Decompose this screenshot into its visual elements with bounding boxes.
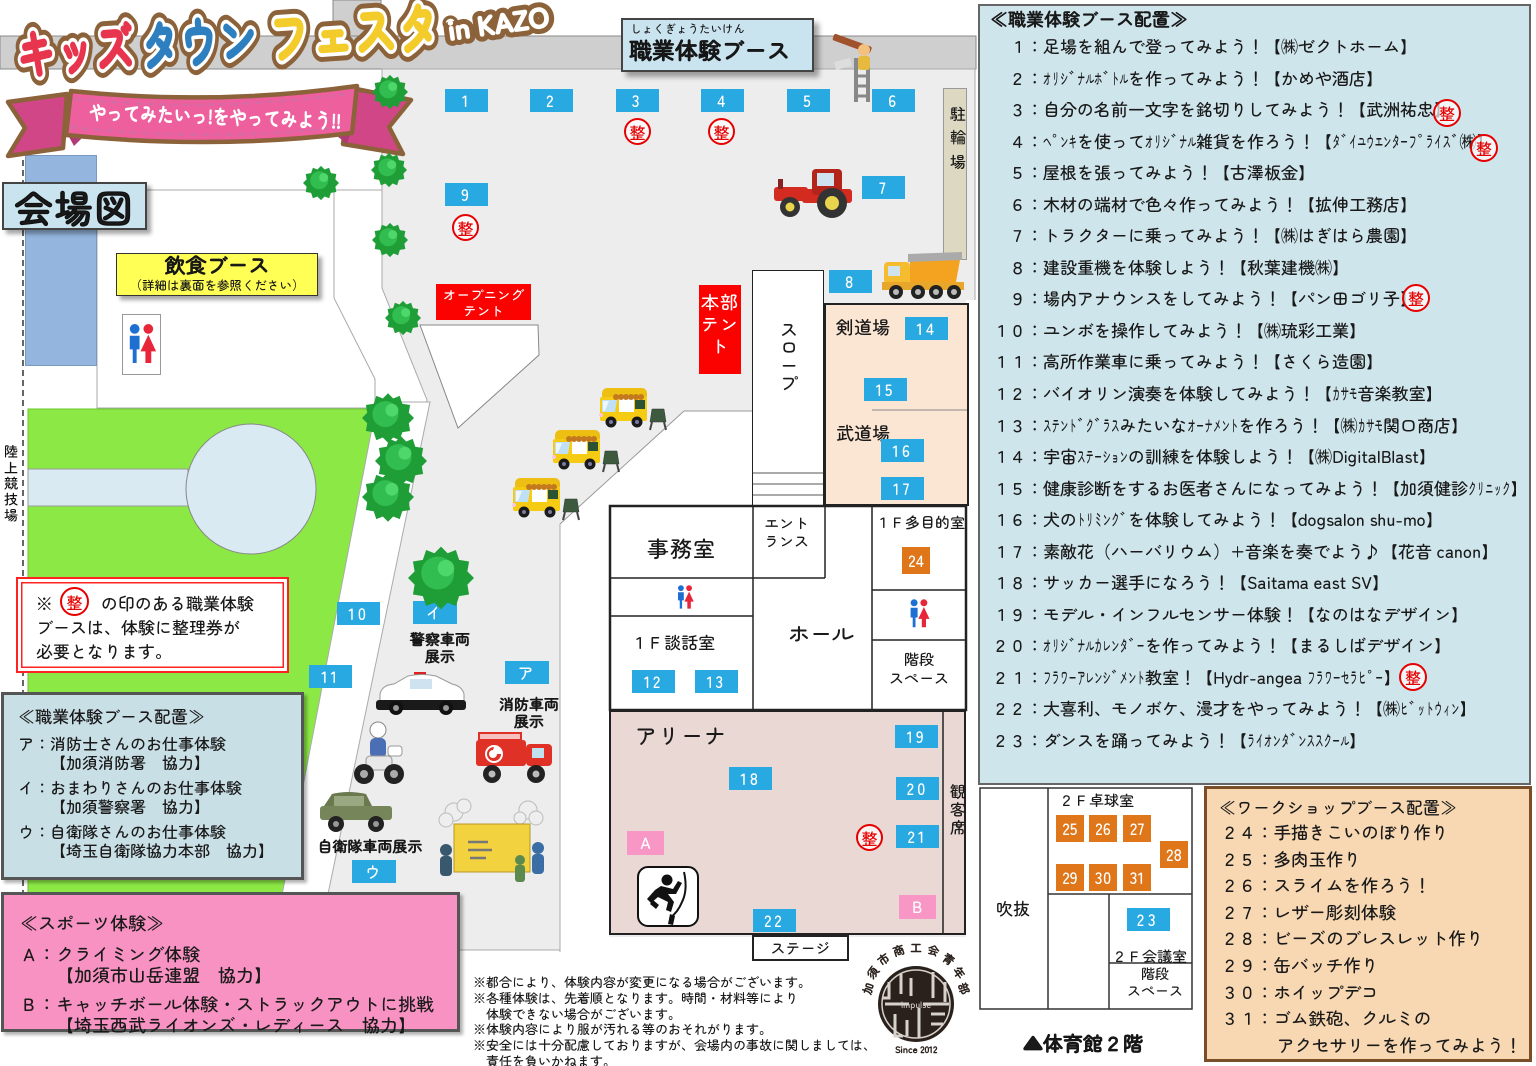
svg-text:年: 年 [949,963,969,982]
svg-text:会: 会 [925,941,941,960]
svg-text:フェスタ: フェスタ [265,0,442,76]
svg-text:加: 加 [859,981,878,998]
svg-text:商: 商 [891,941,907,960]
svg-text:部: 部 [954,980,973,997]
svg-text:キッズ: キッズ [14,4,137,91]
svg-text:Since 2012: Since 2012 [895,1042,938,1056]
svg-text:市: 市 [874,949,893,969]
svg-text:impulse: impulse [901,998,931,1011]
svg-text:in KAZO: in KAZO [445,0,551,48]
svg-text:工: 工 [910,940,922,956]
svg-text:青: 青 [939,950,958,970]
svg-text:タウン: タウン [137,0,260,82]
